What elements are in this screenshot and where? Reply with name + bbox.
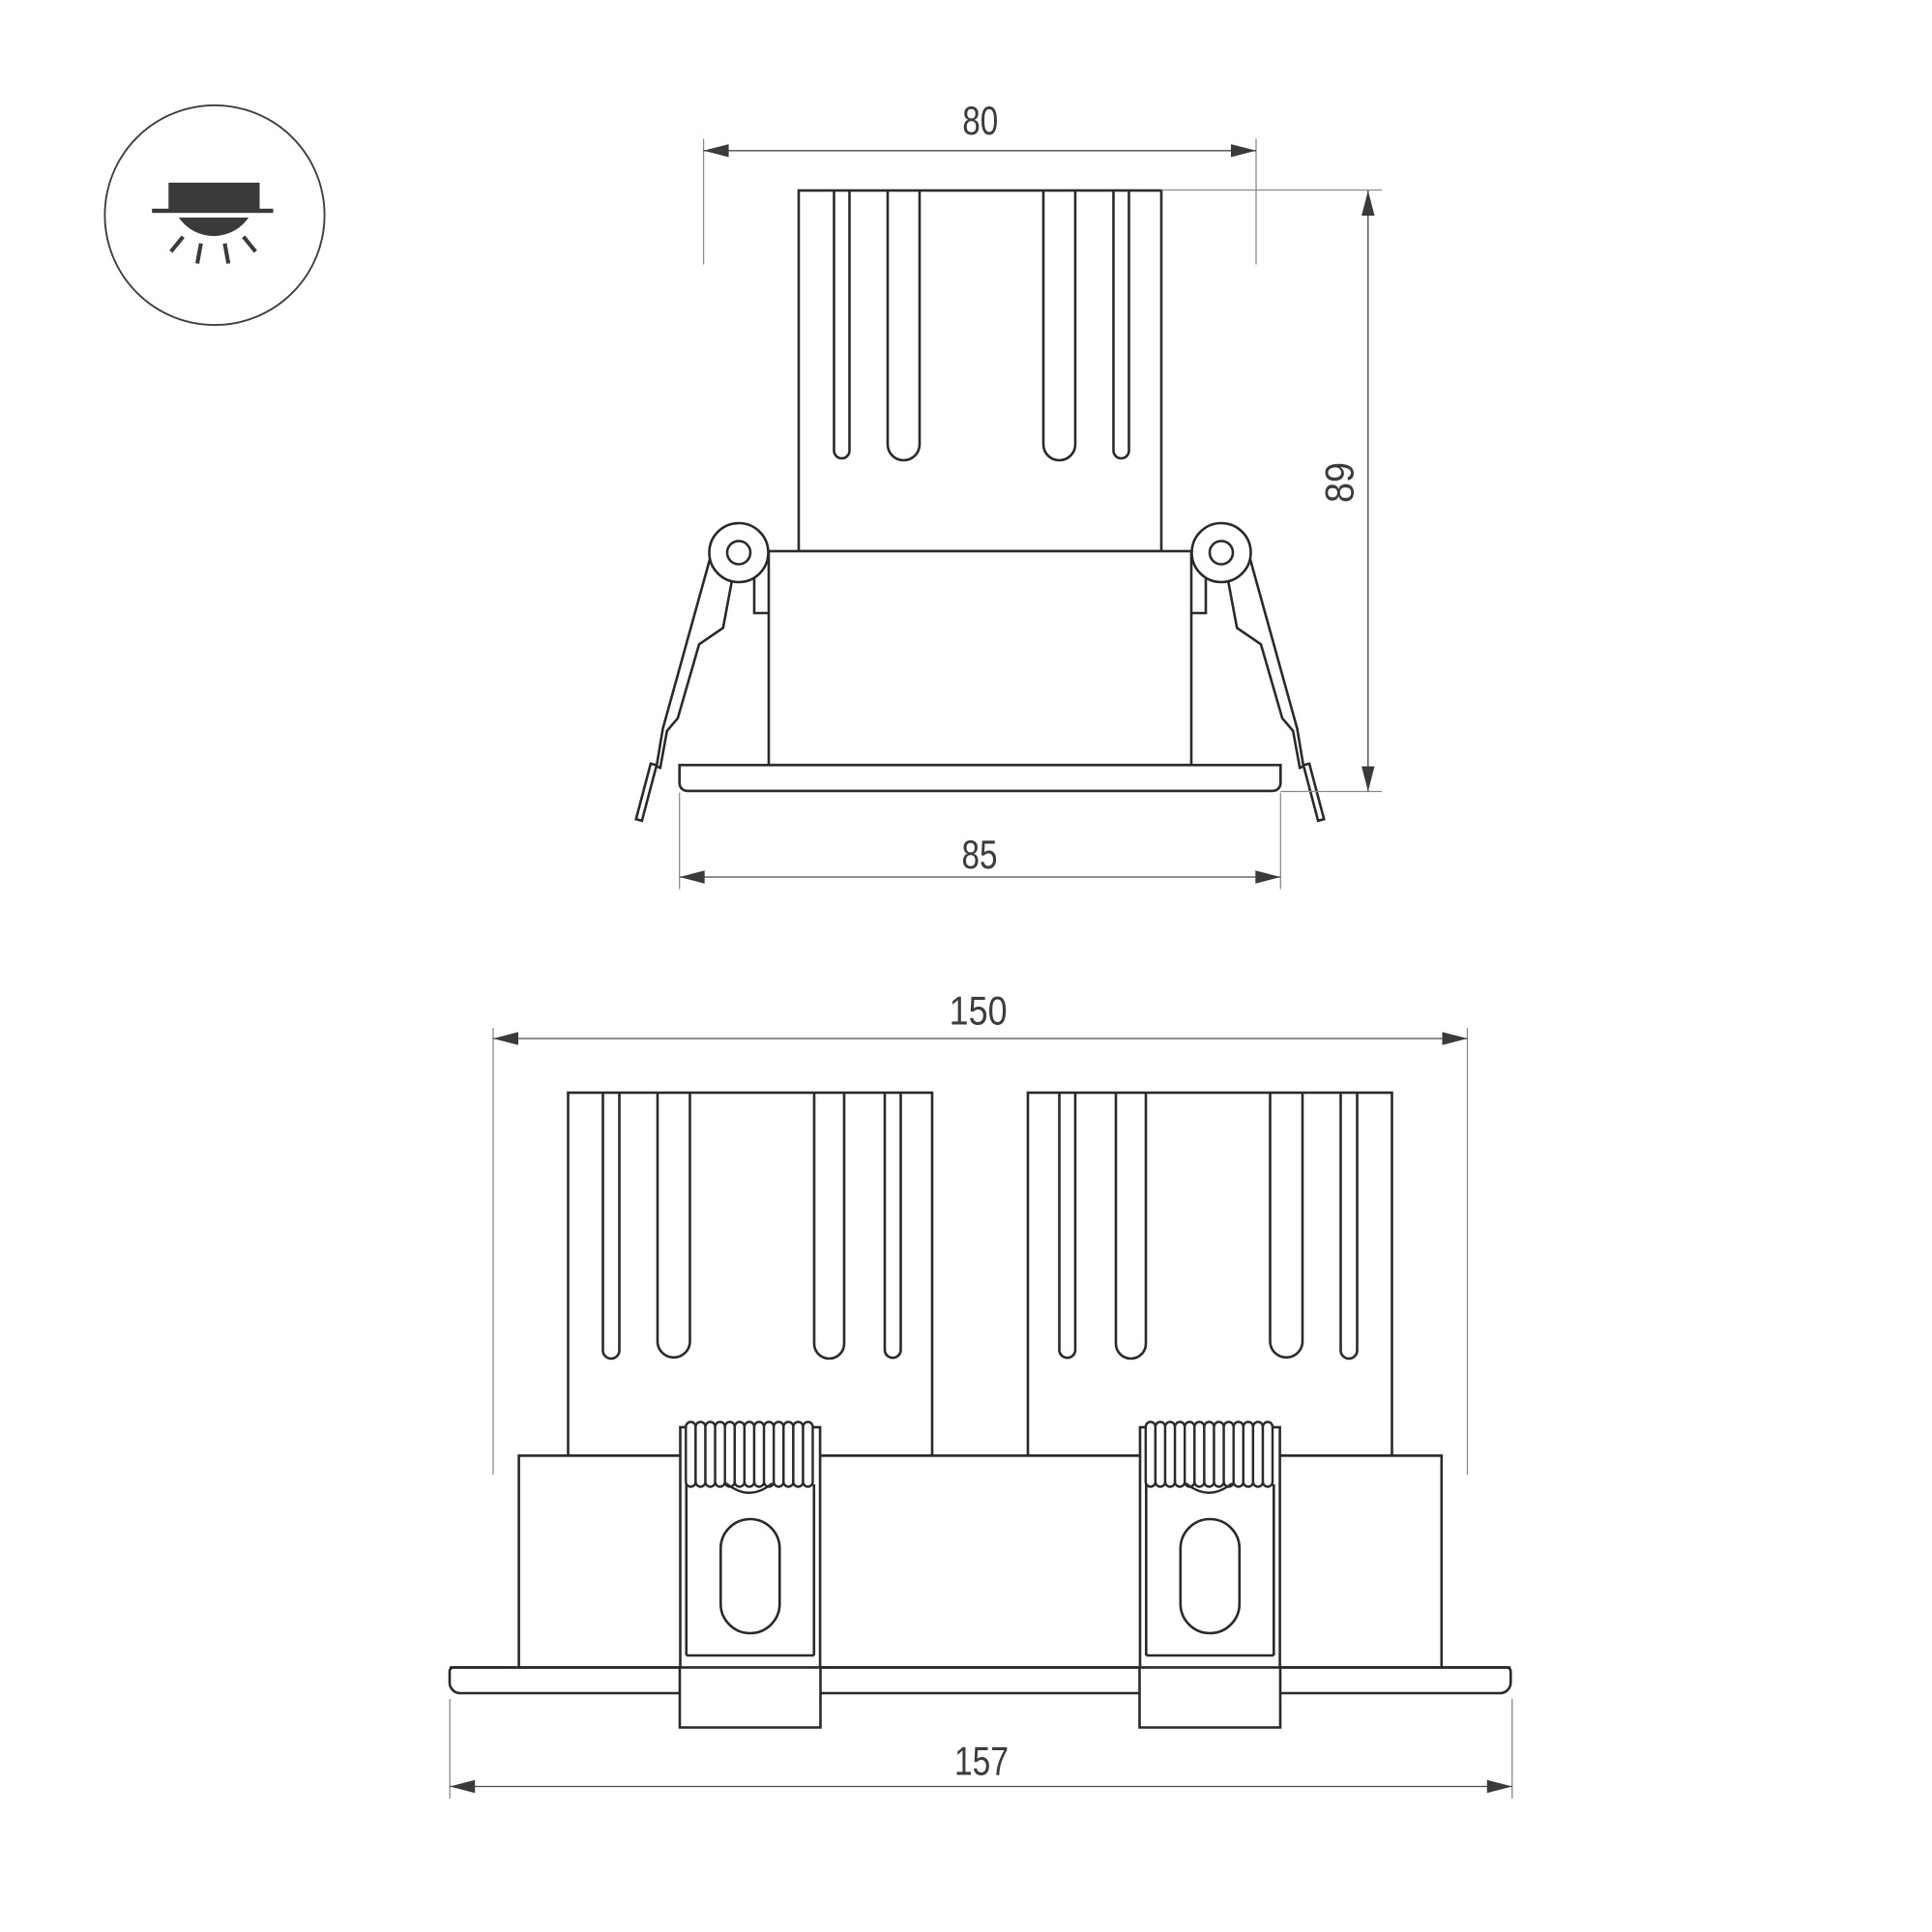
svg-text:89: 89 [1317,462,1362,503]
svg-text:157: 157 [954,1738,1009,1783]
svg-text:80: 80 [962,98,998,143]
svg-text:85: 85 [962,832,998,877]
svg-text:150: 150 [950,988,1008,1034]
